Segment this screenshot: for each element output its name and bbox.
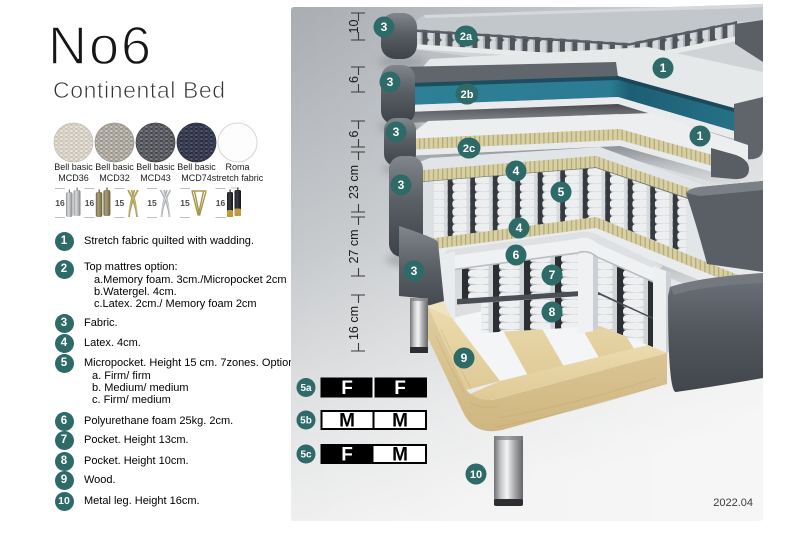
svg-text:5b: 5b bbox=[300, 416, 312, 427]
svg-text:M: M bbox=[392, 445, 408, 466]
svg-text:F: F bbox=[341, 378, 353, 399]
svg-text:7: 7 bbox=[549, 268, 556, 282]
svg-text:27 cm: 27 cm bbox=[347, 229, 361, 263]
svg-text:M: M bbox=[339, 411, 355, 432]
svg-text:3: 3 bbox=[393, 125, 400, 139]
svg-text:2b: 2b bbox=[461, 89, 474, 101]
svg-text:6: 6 bbox=[347, 76, 361, 83]
svg-text:M: M bbox=[392, 411, 408, 432]
svg-text:10: 10 bbox=[470, 469, 482, 481]
svg-text:3: 3 bbox=[387, 75, 394, 89]
svg-text:6: 6 bbox=[347, 130, 361, 137]
svg-text:5c: 5c bbox=[300, 450, 312, 461]
svg-text:F: F bbox=[341, 445, 353, 466]
svg-text:3: 3 bbox=[398, 178, 405, 192]
svg-text:8: 8 bbox=[549, 305, 556, 319]
svg-text:1: 1 bbox=[660, 61, 667, 75]
svg-text:2a: 2a bbox=[460, 31, 473, 43]
svg-text:16 cm: 16 cm bbox=[347, 306, 361, 340]
svg-text:5a: 5a bbox=[300, 383, 312, 394]
svg-text:4: 4 bbox=[516, 221, 523, 235]
svg-text:3: 3 bbox=[411, 264, 418, 278]
svg-text:10: 10 bbox=[347, 20, 361, 34]
svg-text:4: 4 bbox=[513, 164, 520, 178]
svg-text:9: 9 bbox=[461, 351, 468, 365]
svg-text:1: 1 bbox=[697, 129, 704, 143]
svg-text:5: 5 bbox=[558, 185, 565, 199]
svg-text:F: F bbox=[394, 378, 406, 399]
svg-text:2022.04: 2022.04 bbox=[713, 497, 753, 509]
svg-text:23 cm: 23 cm bbox=[347, 165, 361, 199]
svg-text:6: 6 bbox=[513, 248, 520, 262]
svg-text:2c: 2c bbox=[463, 143, 475, 155]
svg-text:3: 3 bbox=[381, 20, 388, 34]
